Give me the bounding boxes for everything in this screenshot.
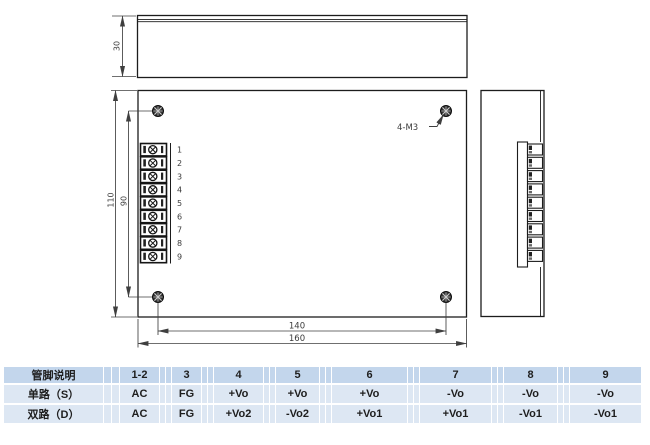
pin-table-cell: +Vo xyxy=(276,385,320,405)
dimension-90-label: 90 xyxy=(119,196,128,206)
side-terminal-unit xyxy=(528,237,543,248)
pin-table-cell: +Vo1 xyxy=(420,405,492,425)
pin-table-header-cell: 9 xyxy=(570,367,642,385)
pin-table-header-cell: 1-2 xyxy=(120,367,160,385)
pin-table-cell: FG xyxy=(172,385,202,405)
side-terminal-unit xyxy=(528,197,543,208)
pin-table-cell: -Vo xyxy=(570,385,642,405)
side-terminal-unit xyxy=(528,224,543,235)
side-terminal-unit xyxy=(528,171,543,182)
terminal-number: 9 xyxy=(177,252,182,261)
pin-table-header-cell: 3 xyxy=(172,367,202,385)
pin-table-cell: -Vo2 xyxy=(276,405,320,425)
pin-table-spacer xyxy=(104,367,112,385)
pin-table-header-cell: 6 xyxy=(332,367,408,385)
side-terminal-unit xyxy=(528,184,543,195)
side-terminal-unit xyxy=(528,144,543,155)
pin-table-header-cell: 4 xyxy=(214,367,264,385)
terminal-number: 2 xyxy=(177,159,182,168)
terminal-unit xyxy=(141,184,167,196)
pin-table-spacer xyxy=(104,385,112,405)
terminal-unit xyxy=(141,237,167,249)
mounting-screw-icon xyxy=(441,292,452,303)
mounting-screw-icon xyxy=(441,106,452,117)
pin-table-cell: +Vo xyxy=(332,385,408,405)
mounting-screw-icon xyxy=(153,106,164,117)
terminal-unit xyxy=(141,250,167,262)
pin-table-spacer xyxy=(112,405,120,425)
pin-table-cell: 双路（D） xyxy=(4,405,104,425)
pin-table-cell: +Vo1 xyxy=(332,405,408,425)
pin-table-cell: +Vo2 xyxy=(214,405,264,425)
pin-table-cell: -Vo xyxy=(504,385,558,405)
terminal-number: 1 xyxy=(177,146,182,155)
mount-hole-label: 4-M3 xyxy=(397,123,418,133)
dimension-30-label: 30 xyxy=(112,41,121,51)
pin-table-cell: FG xyxy=(172,405,202,425)
terminal-number: 6 xyxy=(177,212,182,221)
terminal-unit xyxy=(141,170,167,182)
dimension-140-label: 140 xyxy=(289,322,305,332)
pin-table-spacer xyxy=(112,367,120,385)
technical-drawing: 30 123456789 4-M3 110 90 xyxy=(0,0,650,365)
pin-table-header-cell: 7 xyxy=(420,367,492,385)
terminal-unit xyxy=(141,224,167,236)
pin-table-cell: -Vo1 xyxy=(504,405,558,425)
pin-table-spacer xyxy=(104,405,112,425)
terminal-number: 4 xyxy=(177,186,182,195)
terminal-block: 123456789 xyxy=(141,144,183,263)
side-terminal-unit xyxy=(528,250,543,261)
pin-table-cell: 单路（S） xyxy=(4,385,104,405)
terminal-number: 5 xyxy=(177,199,182,208)
terminal-unit xyxy=(141,157,167,169)
pin-table-header-cell: 5 xyxy=(276,367,320,385)
terminal-number: 8 xyxy=(177,239,182,248)
mount-hole-callout: 4-M3 xyxy=(397,115,444,134)
side-terminal-unit xyxy=(528,157,543,168)
pin-table-header-cell: 管脚说明 xyxy=(4,367,104,385)
top-view xyxy=(138,16,468,78)
side-terminal-block xyxy=(528,144,543,261)
pin-table-cell: -Vo xyxy=(420,385,492,405)
terminal-unit xyxy=(141,144,167,156)
pin-table-cell: AC xyxy=(120,405,160,425)
pin-table-spacer xyxy=(112,385,120,405)
pin-table-cell: +Vo xyxy=(214,385,264,405)
mounting-screws xyxy=(153,106,452,303)
page: 30 123456789 4-M3 110 90 xyxy=(0,0,650,445)
dimension-160-label: 160 xyxy=(289,334,305,344)
mounting-screw-icon xyxy=(153,292,164,303)
pin-table: 管脚说明1-23456789单路（S）ACFG+Vo+Vo+Vo-Vo-Vo-V… xyxy=(4,367,642,425)
dimension-110-label: 110 xyxy=(106,192,115,207)
terminal-unit xyxy=(141,210,167,222)
terminal-number: 7 xyxy=(177,226,182,235)
pin-table-cell: -Vo1 xyxy=(570,405,642,425)
pin-table-cell: AC xyxy=(120,385,160,405)
terminal-number: 3 xyxy=(177,172,182,181)
pin-table-header-cell: 8 xyxy=(504,367,558,385)
side-terminal-unit xyxy=(528,211,543,222)
terminal-unit xyxy=(141,197,167,209)
